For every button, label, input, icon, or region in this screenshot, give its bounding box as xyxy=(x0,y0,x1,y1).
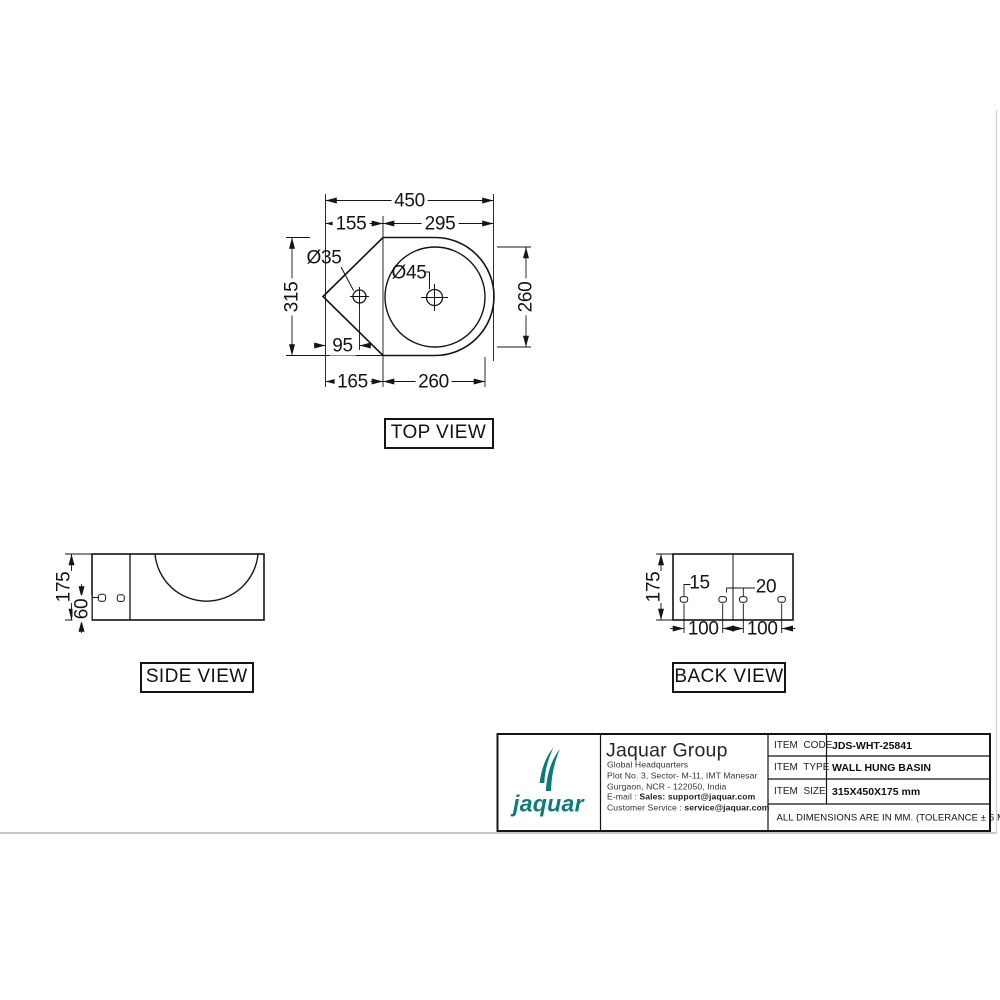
email-line: E-mail : Sales: support@jaquar.com xyxy=(607,793,755,802)
item-size-value: 315X450X175 mm xyxy=(832,787,920,798)
dim-faucet-hole-dia: Ø35 xyxy=(306,249,341,268)
dim-bottom-right: 260 xyxy=(415,372,452,391)
dim-overall-width: 450 xyxy=(391,191,428,210)
item-type-value: WALL HUNG BASIN xyxy=(832,763,931,774)
item-type-label: ITEM TYPE xyxy=(774,763,829,773)
item-code-label: ITEM CODE xyxy=(774,741,832,751)
jaquar-wordmark: jaquar xyxy=(513,793,584,816)
company-name: Jaquar Group xyxy=(606,741,728,761)
item-code-value: JDS-WHT-25841 xyxy=(832,740,912,751)
dim-bowl-dia: 260 xyxy=(517,279,536,316)
dim-left-segment: 155 xyxy=(333,214,370,233)
dim-bottom-left: 165 xyxy=(334,372,371,391)
drawing-linework xyxy=(0,0,1000,1000)
side-view-label: SIDE VIEW xyxy=(140,662,254,694)
back-view-label: BACK VIEW xyxy=(672,662,786,694)
dim-faucet-offset: 95 xyxy=(329,336,356,355)
dim-right-segment: 295 xyxy=(422,214,459,233)
tolerance-note: ALL DIMENSIONS ARE IN MM. (TOLERANCE ± 5… xyxy=(777,813,1000,823)
customer-service-line: Customer Service : service@jaquar.com xyxy=(607,803,770,812)
dim-back-height: 175 xyxy=(644,572,663,603)
top-view-label: TOP VIEW xyxy=(384,418,494,449)
address-line: Gurgaon, NCR - 122050, India xyxy=(607,782,726,791)
dim-back-pitch-right: 100 xyxy=(747,619,778,638)
sheet-edge xyxy=(0,110,997,833)
item-size-label: ITEM SIZE xyxy=(774,787,826,797)
drawing-sheet: 450 155 295 315 260 Ø35 Ø45 95 165 260 T… xyxy=(0,0,1000,1000)
dim-overall-depth: 315 xyxy=(282,278,301,315)
address-line: Global Headquarters xyxy=(607,761,688,770)
dim-back-slot-right: 20 xyxy=(756,577,777,596)
jaquar-logo-icon xyxy=(540,748,561,792)
dim-drain-dia: Ø45 xyxy=(391,264,426,283)
side-view-outline xyxy=(92,554,264,620)
address-line: Plot No. 3, Sector- M-11, IMT Manesar xyxy=(607,772,757,781)
email-label: E-mail : xyxy=(607,792,639,802)
service-value: service@jaquar.com xyxy=(684,802,769,812)
email-value: Sales: support@jaquar.com xyxy=(639,792,755,802)
dim-back-slot-left: 15 xyxy=(689,574,710,593)
dim-back-pitch-left: 100 xyxy=(688,619,719,638)
dim-side-hole-height: 60 xyxy=(72,596,91,623)
service-label: Customer Service : xyxy=(607,802,684,812)
